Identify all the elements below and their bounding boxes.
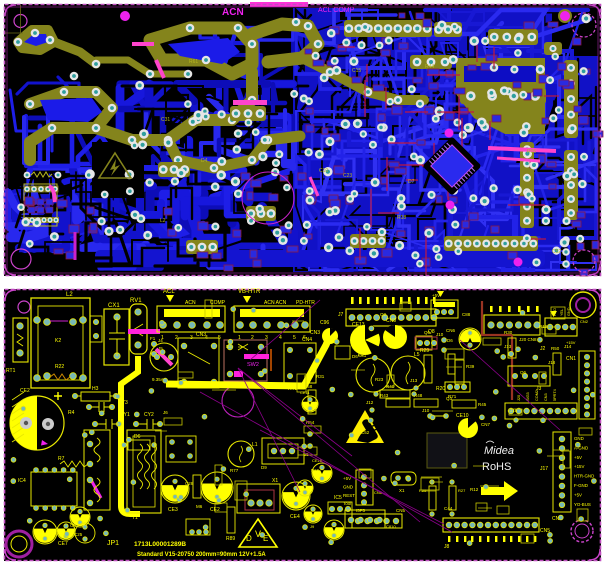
svg-text:J4: J4: [158, 338, 163, 343]
svg-text:CE3: CE3: [168, 507, 178, 513]
svg-text:J18: J18: [548, 360, 556, 365]
svg-text:R39: R39: [466, 364, 475, 369]
svg-text:R45: R45: [478, 402, 487, 407]
svg-text:R29: R29: [420, 348, 429, 354]
svg-text:R4: R4: [68, 410, 75, 416]
svg-text:R71: R71: [448, 394, 457, 399]
svg-text:RT1: RT1: [6, 368, 16, 374]
svg-text:ACN ACN: ACN ACN: [264, 300, 287, 306]
svg-text:CE10: CE10: [456, 413, 469, 419]
svg-text:C52: C52: [552, 249, 561, 255]
svg-text:F1: F1: [150, 336, 156, 341]
svg-text:RV1: RV1: [130, 298, 142, 304]
svg-text:F-GND: F-GND: [574, 483, 588, 488]
svg-text:R89: R89: [226, 536, 235, 542]
svg-text:R12: R12: [470, 487, 479, 492]
svg-text:YO-BUS: YO-BUS: [574, 502, 591, 507]
svg-text:R7: R7: [58, 456, 65, 462]
svg-text:IC5: IC5: [334, 495, 342, 501]
svg-text:CN7: CN7: [481, 422, 490, 427]
svg-text:R43: R43: [380, 393, 389, 398]
svg-text:C31: C31: [161, 117, 170, 123]
svg-text:ACL: ACL: [163, 289, 175, 295]
svg-text:J14: J14: [564, 344, 572, 349]
svg-text:CY1: CY1: [120, 412, 130, 418]
svg-text:D9: D9: [261, 465, 267, 470]
svg-text:C15: C15: [352, 68, 361, 74]
svg-text:CN4: CN4: [302, 337, 312, 343]
svg-text:CN3: CN3: [544, 393, 548, 401]
svg-text:C10: C10: [319, 168, 328, 174]
svg-text:R61: R61: [189, 59, 198, 65]
svg-text:5PRT4: 5PRT4: [553, 389, 557, 401]
svg-text:J6: J6: [163, 410, 168, 415]
svg-text:C52: C52: [361, 430, 370, 435]
svg-text:J20: J20: [517, 395, 521, 401]
svg-text:CE2: CE2: [20, 388, 30, 394]
svg-text:L2: L2: [66, 292, 73, 298]
svg-text:L5: L5: [414, 352, 420, 358]
svg-text:R77: R77: [230, 468, 239, 473]
svg-text:CN6: CN6: [446, 328, 455, 333]
svg-text:CY3: CY3: [118, 400, 128, 406]
svg-text:R30: R30: [504, 330, 513, 335]
svg-text:+5V: +5V: [343, 476, 351, 481]
svg-text:D6: D6: [447, 338, 453, 343]
svg-text:J2: J2: [540, 346, 546, 352]
svg-text:I5F5: I5F5: [356, 508, 366, 513]
svg-text:CN8: CN8: [386, 318, 396, 324]
svg-text:ACN: ACN: [185, 300, 196, 306]
svg-text:CE16: CE16: [312, 458, 323, 463]
svg-text:C88: C88: [462, 312, 471, 317]
svg-text:C25: C25: [74, 532, 83, 537]
svg-text:R66: R66: [311, 468, 320, 473]
svg-text:ACN: ACN: [222, 7, 244, 18]
svg-text:REST: REST: [343, 493, 355, 498]
svg-text:4: 4: [279, 335, 282, 341]
svg-text:Q6: Q6: [520, 370, 527, 375]
svg-text:CN2: CN2: [580, 319, 589, 324]
svg-text:J7: J7: [338, 312, 344, 318]
svg-text:K2: K2: [55, 338, 61, 344]
svg-text:J20 CN8: J20 CN8: [519, 337, 537, 342]
svg-text:R18: R18: [397, 215, 406, 221]
svg-text:IC4: IC4: [18, 478, 26, 484]
svg-text:GND: GND: [567, 307, 571, 316]
svg-text:D7: D7: [408, 179, 415, 185]
svg-text:CY2: CY2: [144, 412, 154, 418]
svg-text:5: 5: [293, 335, 296, 341]
svg-text:+15V: +15V: [574, 464, 584, 469]
svg-text:C44: C44: [444, 506, 453, 511]
svg-text:D4: D4: [226, 344, 232, 349]
svg-text:Q2: Q2: [380, 312, 387, 317]
svg-text:M6: M6: [196, 504, 203, 509]
svg-text:R05: R05: [527, 149, 536, 155]
svg-text:R23: R23: [375, 377, 384, 382]
svg-text:C96: C96: [320, 320, 329, 326]
svg-text:X1: X1: [272, 478, 278, 484]
svg-text:Standard V15-20750 200mm=90m: Standard V15-20750 200mm=90mm 12V+1.5A: [137, 552, 266, 558]
svg-text:SW2: SW2: [247, 362, 259, 368]
svg-text:R25: R25: [419, 488, 427, 493]
svg-text:C810: C810: [386, 524, 396, 529]
svg-text:Q4: Q4: [304, 374, 311, 379]
svg-text:GND: GND: [574, 436, 584, 441]
svg-text:CE4: CE4: [290, 514, 300, 520]
svg-text:R58: R58: [304, 384, 313, 389]
svg-text:X1: X1: [399, 488, 405, 493]
svg-text:R19: R19: [539, 324, 548, 329]
svg-text:R27: R27: [458, 488, 466, 493]
svg-text:C31: C31: [358, 353, 367, 358]
svg-text:9.35A: 9.35A: [152, 377, 164, 382]
svg-text:VB-HTR: VB-HTR: [238, 289, 261, 295]
svg-text:C23: C23: [343, 173, 352, 179]
svg-text:CN3: CN3: [196, 332, 206, 338]
svg-text:+5V: +5V: [574, 455, 582, 460]
svg-text:R31: R31: [316, 374, 325, 379]
svg-text:1713L00001289B: 1713L00001289B: [134, 541, 186, 548]
svg-text:D: D: [246, 534, 252, 543]
svg-text:T1: T1: [132, 515, 138, 521]
svg-text:RoHS: RoHS: [482, 461, 511, 473]
svg-text:H3: H3: [92, 386, 99, 392]
svg-text:HTR-GND: HTR-GND: [574, 474, 594, 479]
svg-text:Tool: Tool: [343, 501, 351, 506]
svg-text:R20: R20: [436, 386, 445, 392]
svg-text:L2: L2: [160, 218, 166, 224]
svg-text:D6: D6: [134, 434, 141, 440]
svg-text:COM2: COM2: [535, 390, 539, 401]
svg-text:R22: R22: [55, 364, 64, 370]
svg-text:J8: J8: [444, 544, 450, 550]
svg-text:J10: J10: [422, 408, 430, 413]
svg-text:J17: J17: [540, 466, 548, 472]
svg-text:R44: R44: [425, 64, 434, 70]
svg-text:C12: C12: [285, 311, 294, 316]
svg-text:L1: L1: [252, 442, 258, 448]
svg-text:CE7: CE7: [58, 541, 68, 547]
svg-text:C28: C28: [185, 481, 194, 486]
svg-text:Midea: Midea: [484, 445, 514, 457]
svg-text:JP1: JP1: [107, 540, 119, 547]
svg-text:RED: RED: [553, 308, 557, 316]
svg-text:YEL: YEL: [560, 309, 564, 316]
svg-text:D4: D4: [201, 158, 208, 164]
svg-text:CE13: CE13: [352, 322, 365, 328]
svg-text:J12: J12: [366, 400, 374, 405]
svg-text:CX1: CX1: [108, 303, 120, 309]
svg-text:GND: GND: [343, 484, 354, 489]
svg-text:PD-HTR: PD-HTR: [296, 300, 315, 306]
svg-text:J10: J10: [436, 332, 444, 337]
svg-text:J13: J13: [410, 378, 418, 383]
svg-text:CE11: CE11: [300, 390, 310, 395]
svg-text:R50: R50: [551, 346, 560, 351]
svg-text:+5V: +5V: [574, 492, 582, 497]
svg-text:CN3: CN3: [310, 330, 320, 336]
svg-text:ACL COMP: ACL COMP: [318, 7, 355, 14]
svg-text:Q6: Q6: [424, 330, 431, 335]
svg-text:CN1: CN1: [566, 356, 576, 362]
